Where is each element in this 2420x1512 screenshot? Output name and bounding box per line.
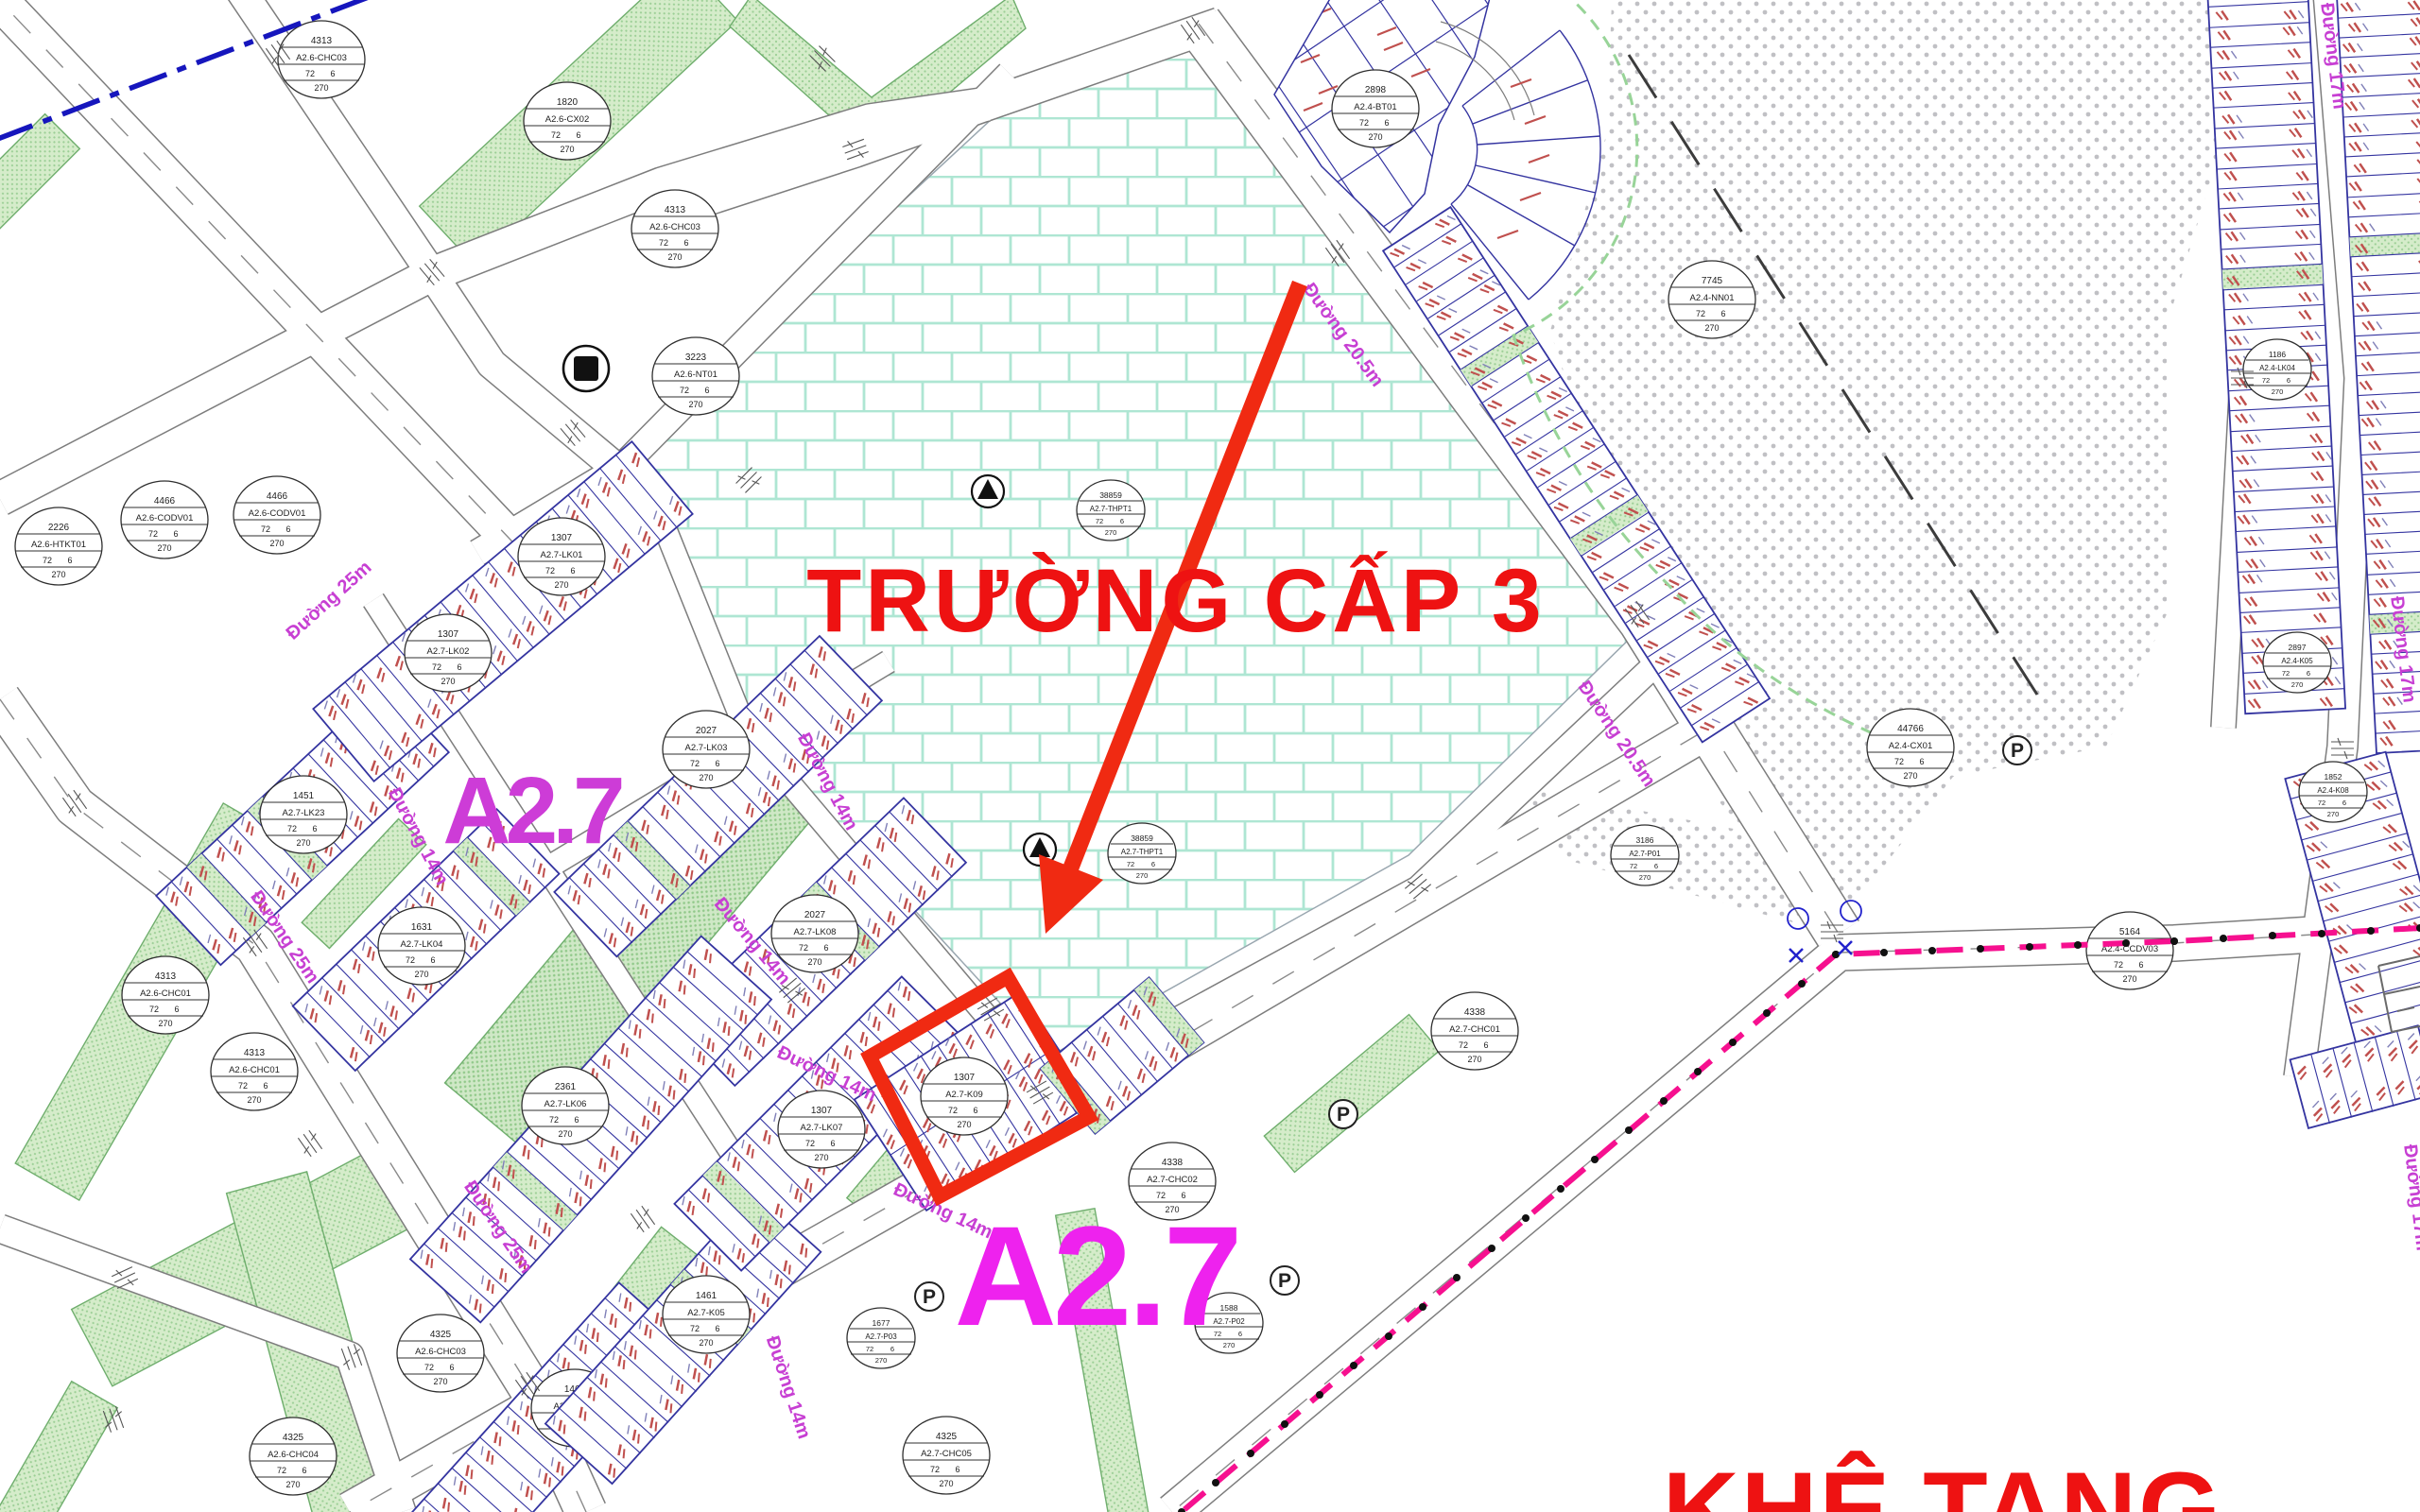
svg-text:4338: 4338: [1162, 1158, 1184, 1168]
svg-text:72: 72: [2282, 669, 2290, 678]
svg-text:1451: 1451: [293, 791, 315, 801]
svg-text:7745: 7745: [1702, 276, 1723, 286]
svg-text:270: 270: [1639, 873, 1651, 882]
svg-text:270: 270: [560, 145, 574, 154]
svg-text:6: 6: [67, 556, 72, 565]
svg-text:270: 270: [269, 539, 284, 548]
svg-text:A2.6-CHC04: A2.6-CHC04: [268, 1450, 319, 1460]
svg-text:1307: 1307: [811, 1106, 833, 1116]
svg-text:2898: 2898: [1365, 85, 1387, 95]
svg-text:270: 270: [875, 1356, 888, 1365]
svg-text:270: 270: [157, 543, 171, 553]
svg-text:72: 72: [1096, 517, 1103, 525]
svg-text:270: 270: [2272, 387, 2284, 396]
svg-text:270: 270: [2327, 810, 2340, 818]
svg-text:6: 6: [302, 1466, 306, 1475]
svg-text:6: 6: [1483, 1040, 1488, 1050]
svg-text:A2.7-K05: A2.7-K05: [687, 1308, 725, 1318]
svg-text:270: 270: [667, 252, 682, 262]
svg-text:6: 6: [1384, 118, 1389, 128]
svg-text:1307: 1307: [438, 629, 459, 640]
svg-text:72: 72: [680, 386, 689, 395]
svg-text:A2.6-HTKT01: A2.6-HTKT01: [31, 540, 86, 550]
svg-text:A2.7-THPT1: A2.7-THPT1: [1090, 505, 1132, 513]
svg-text:6: 6: [1919, 757, 1924, 766]
svg-text:1631: 1631: [411, 922, 433, 933]
svg-text:A2.7-THPT1: A2.7-THPT1: [1121, 848, 1164, 856]
svg-text:270: 270: [554, 580, 568, 590]
svg-text:A2.4-CX01: A2.4-CX01: [1889, 741, 1932, 751]
svg-text:6: 6: [2307, 669, 2310, 678]
svg-text:1307: 1307: [551, 533, 573, 543]
svg-text:270: 270: [1704, 323, 1719, 333]
svg-text:72: 72: [805, 1139, 815, 1148]
svg-text:A2.7: A2.7: [442, 758, 622, 864]
svg-text:270: 270: [558, 1129, 572, 1139]
svg-text:1186: 1186: [2269, 350, 2287, 359]
svg-text:270: 270: [247, 1095, 261, 1105]
svg-text:72: 72: [305, 69, 315, 78]
svg-text:6: 6: [830, 1139, 835, 1148]
svg-text:270: 270: [1105, 528, 1117, 537]
svg-text:6: 6: [570, 566, 575, 576]
svg-text:270: 270: [314, 83, 328, 93]
svg-text:72: 72: [1894, 757, 1904, 766]
svg-text:270: 270: [2291, 680, 2304, 689]
svg-text:A2.7-LK01: A2.7-LK01: [541, 550, 583, 560]
svg-text:6: 6: [1120, 517, 1124, 525]
svg-text:44766: 44766: [1897, 724, 1924, 734]
svg-text:72: 72: [238, 1081, 248, 1091]
svg-text:6: 6: [715, 759, 719, 768]
svg-text:72: 72: [2114, 960, 2123, 970]
svg-text:2027: 2027: [804, 910, 826, 920]
svg-text:72: 72: [799, 943, 808, 953]
svg-text:38859: 38859: [1099, 490, 1122, 500]
svg-text:A2.7-P03: A2.7-P03: [865, 1332, 897, 1341]
svg-text:6: 6: [715, 1324, 719, 1333]
svg-text:6: 6: [430, 955, 435, 965]
svg-text:6: 6: [973, 1106, 977, 1115]
svg-text:6: 6: [457, 662, 461, 672]
svg-text:A2.7-P01: A2.7-P01: [1629, 850, 1661, 858]
svg-text:270: 270: [441, 677, 455, 686]
svg-text:72: 72: [1696, 309, 1705, 318]
svg-text:270: 270: [51, 570, 65, 579]
svg-text:A2.4-BT01: A2.4-BT01: [1354, 102, 1396, 112]
svg-text:72: 72: [690, 759, 700, 768]
svg-text:A2.7-CHC05: A2.7-CHC05: [921, 1449, 972, 1459]
svg-text:270: 270: [699, 773, 713, 782]
svg-text:72: 72: [277, 1466, 286, 1475]
svg-text:6: 6: [823, 943, 828, 953]
svg-text:A2.4-NN01: A2.4-NN01: [1690, 293, 1735, 303]
svg-text:4313: 4313: [155, 971, 177, 982]
svg-text:72: 72: [690, 1324, 700, 1333]
svg-text:6: 6: [2287, 376, 2290, 385]
svg-text:72: 72: [406, 955, 415, 965]
svg-text:1820: 1820: [557, 97, 579, 108]
svg-text:6: 6: [955, 1465, 959, 1474]
svg-text:A2.6-CHC01: A2.6-CHC01: [229, 1065, 280, 1075]
svg-text:A2.7-LK03: A2.7-LK03: [685, 743, 728, 753]
svg-text:4325: 4325: [936, 1432, 958, 1442]
svg-text:72: 72: [1359, 118, 1369, 128]
svg-text:A2.7-LK06: A2.7-LK06: [544, 1099, 587, 1109]
svg-text:4325: 4325: [283, 1433, 304, 1443]
svg-text:1461: 1461: [696, 1291, 717, 1301]
svg-text:1307: 1307: [954, 1073, 976, 1083]
svg-text:A2.7-CHC01: A2.7-CHC01: [1449, 1024, 1500, 1035]
svg-text:A2.7-LK02: A2.7-LK02: [427, 646, 470, 657]
svg-text:A2.7-LK07: A2.7-LK07: [801, 1123, 843, 1133]
svg-text:6: 6: [263, 1081, 268, 1091]
svg-text:2897: 2897: [2289, 643, 2307, 652]
svg-text:1852: 1852: [2325, 772, 2342, 782]
svg-text:A2.7: A2.7: [955, 1196, 1239, 1355]
svg-text:72: 72: [432, 662, 441, 672]
svg-text:72: 72: [659, 238, 668, 248]
svg-text:A2.7-LK23: A2.7-LK23: [283, 808, 325, 818]
svg-text:6: 6: [683, 238, 688, 248]
svg-text:270: 270: [1903, 771, 1917, 781]
svg-text:72: 72: [424, 1363, 434, 1372]
svg-text:6: 6: [1151, 860, 1155, 868]
svg-text:270: 270: [285, 1480, 300, 1489]
svg-text:4466: 4466: [267, 491, 288, 502]
svg-text:270: 270: [1136, 871, 1149, 880]
svg-text:6: 6: [174, 1005, 179, 1014]
svg-text:6: 6: [704, 386, 709, 395]
svg-text:A2.7-LK04: A2.7-LK04: [401, 939, 443, 950]
svg-text:A2.7-K09: A2.7-K09: [945, 1090, 983, 1100]
svg-text:3223: 3223: [685, 352, 707, 363]
svg-text:6: 6: [449, 1363, 454, 1372]
svg-text:270: 270: [433, 1377, 447, 1386]
svg-text:270: 270: [414, 970, 428, 979]
svg-text:72: 72: [930, 1465, 940, 1474]
svg-text:P: P: [1278, 1270, 1291, 1292]
svg-text:A2.4-LK04: A2.4-LK04: [2259, 364, 2295, 372]
svg-text:72: 72: [148, 529, 158, 539]
svg-text:1677: 1677: [873, 1318, 890, 1328]
svg-text:A2.7-CHC02: A2.7-CHC02: [1147, 1175, 1198, 1185]
svg-text:A2.6-CX02: A2.6-CX02: [545, 114, 589, 125]
svg-text:6: 6: [173, 529, 178, 539]
svg-text:72: 72: [261, 524, 270, 534]
svg-text:6: 6: [1238, 1330, 1242, 1338]
svg-text:4325: 4325: [430, 1330, 452, 1340]
svg-text:A2.6-CHC03: A2.6-CHC03: [296, 53, 347, 63]
svg-text:4313: 4313: [311, 36, 333, 46]
svg-text:38859: 38859: [1131, 833, 1153, 843]
svg-text:4313: 4313: [244, 1048, 266, 1058]
svg-text:A2.6-CHC01: A2.6-CHC01: [140, 988, 191, 999]
svg-text:6: 6: [312, 824, 317, 833]
svg-text:72: 72: [545, 566, 555, 576]
svg-text:A2.6-CODV01: A2.6-CODV01: [136, 513, 194, 524]
svg-text:6: 6: [285, 524, 290, 534]
svg-text:2226: 2226: [48, 523, 70, 533]
svg-text:270: 270: [2122, 974, 2136, 984]
svg-text:72: 72: [2262, 376, 2270, 385]
svg-text:270: 270: [939, 1479, 953, 1488]
svg-text:72: 72: [1459, 1040, 1468, 1050]
svg-text:72: 72: [1127, 860, 1134, 868]
svg-text:4338: 4338: [1464, 1007, 1486, 1018]
svg-text:270: 270: [807, 957, 821, 967]
svg-text:270: 270: [1368, 132, 1382, 142]
svg-text:A2.6-CODV01: A2.6-CODV01: [249, 508, 306, 519]
svg-text:P: P: [923, 1286, 936, 1308]
svg-text:6: 6: [1720, 309, 1725, 318]
svg-text:3186: 3186: [1636, 835, 1654, 845]
svg-text:72: 72: [287, 824, 297, 833]
svg-text:270: 270: [957, 1120, 971, 1129]
svg-text:A2.4-K08: A2.4-K08: [2317, 786, 2349, 795]
svg-text:270: 270: [296, 838, 310, 848]
svg-text:72: 72: [149, 1005, 159, 1014]
svg-text:KHÊ TANG: KHÊ TANG: [1663, 1451, 2223, 1512]
svg-text:6: 6: [330, 69, 335, 78]
svg-text:6: 6: [1654, 862, 1658, 870]
svg-text:TRƯỜNG CẤP 3: TRƯỜNG CẤP 3: [806, 550, 1545, 651]
svg-text:5164: 5164: [2119, 927, 2141, 937]
svg-text:270: 270: [688, 400, 702, 409]
svg-text:A2.6-CHC03: A2.6-CHC03: [415, 1347, 466, 1357]
svg-text:2361: 2361: [555, 1082, 577, 1092]
svg-text:6: 6: [890, 1345, 894, 1353]
svg-text:P: P: [1337, 1104, 1350, 1125]
svg-text:P: P: [2011, 740, 2024, 762]
svg-text:A2.7-LK08: A2.7-LK08: [794, 927, 837, 937]
svg-text:A2.6-CHC03: A2.6-CHC03: [649, 222, 700, 232]
svg-text:270: 270: [158, 1019, 172, 1028]
svg-text:4466: 4466: [154, 496, 176, 507]
svg-text:2027: 2027: [696, 726, 717, 736]
svg-text:270: 270: [1467, 1055, 1481, 1064]
svg-text:72: 72: [549, 1115, 559, 1125]
svg-text:6: 6: [574, 1115, 579, 1125]
svg-text:72: 72: [1630, 862, 1637, 870]
svg-text:6: 6: [2138, 960, 2143, 970]
svg-text:6: 6: [576, 130, 580, 140]
svg-text:A2.4-K05: A2.4-K05: [2281, 657, 2313, 665]
svg-text:72: 72: [948, 1106, 958, 1115]
svg-text:4313: 4313: [665, 205, 686, 215]
svg-text:A2.6-NT01: A2.6-NT01: [674, 369, 717, 380]
svg-text:72: 72: [43, 556, 52, 565]
svg-text:72: 72: [551, 130, 561, 140]
svg-text:72: 72: [866, 1345, 873, 1353]
svg-text:72: 72: [2318, 799, 2325, 807]
svg-text:270: 270: [699, 1338, 713, 1348]
svg-text:270: 270: [814, 1153, 828, 1162]
svg-text:6: 6: [2342, 799, 2346, 807]
